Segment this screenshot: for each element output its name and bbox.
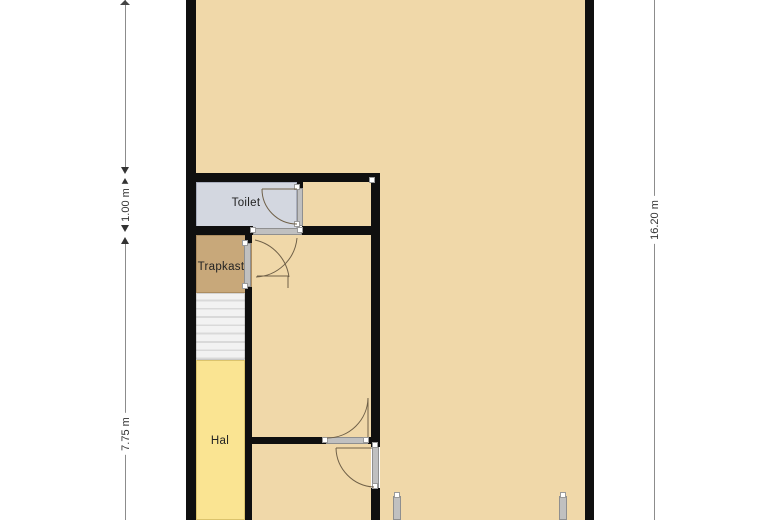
door-swing-arcs <box>0 0 780 520</box>
door-arc-toilet <box>262 189 297 224</box>
floor-plan: Toilet Trapkast Hal 1.00 m 7.75 m 16.20 … <box>0 0 780 520</box>
door-arc-trapkast <box>255 240 289 277</box>
room-label-toilet: Toilet <box>232 197 261 209</box>
door-arc-corridor-top <box>256 238 297 277</box>
door-arc-corridor-bottom <box>327 398 368 438</box>
room-label-trapkast: Trapkast <box>198 261 245 273</box>
door-arc-lower-room <box>336 448 374 487</box>
room-label-hal: Hal <box>211 435 229 447</box>
door-leaf-trapkast <box>257 276 288 288</box>
